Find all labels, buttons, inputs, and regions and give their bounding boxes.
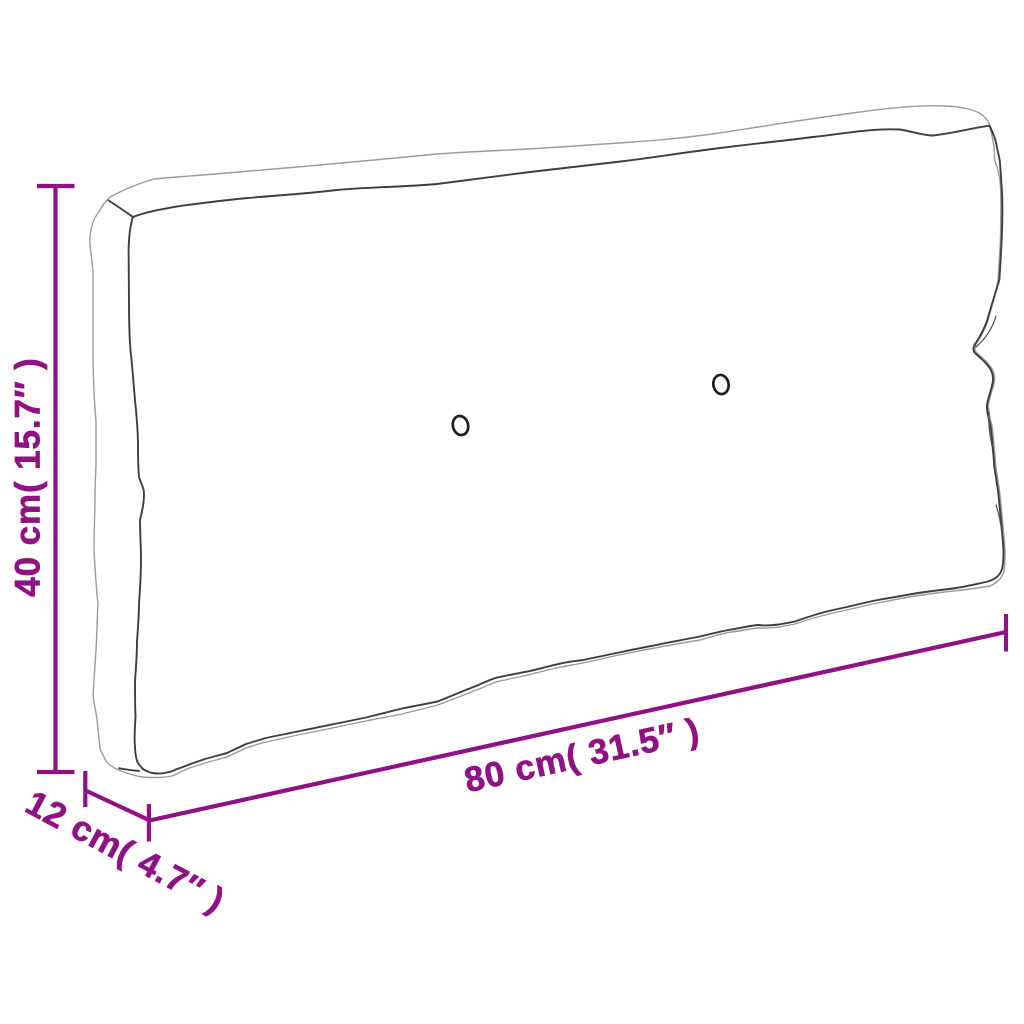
svg-text:40 cm( 15.7″ ): 40 cm( 15.7″ ) xyxy=(9,357,48,597)
